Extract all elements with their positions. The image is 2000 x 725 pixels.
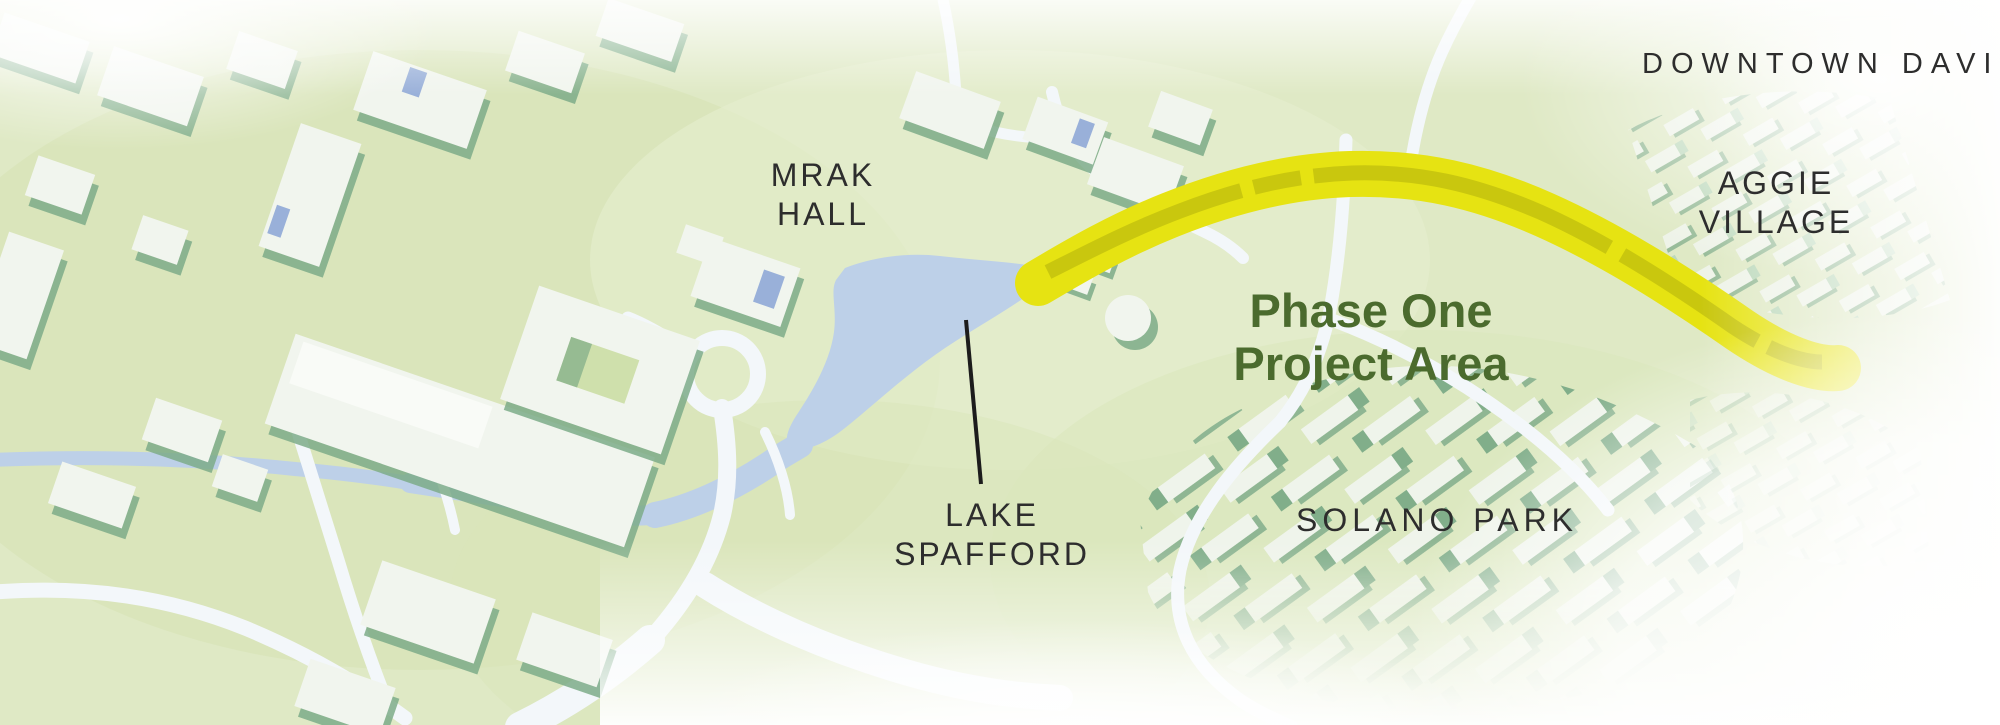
label-mrak-hall-line2: HALL — [771, 195, 875, 234]
map-illustration — [0, 0, 2000, 725]
campus-map: DOWNTOWN DAVIS MRAK HALL Phase One Proje… — [0, 0, 2000, 725]
label-aggie-village-line2: VILLAGE — [1699, 203, 1853, 242]
label-aggie-village: AGGIE VILLAGE — [1699, 164, 1853, 242]
label-mrak-hall: MRAK HALL — [771, 156, 875, 234]
label-solano-park: SOLANO PARK — [1296, 502, 1578, 539]
phase-title-line1: Phase One — [1233, 284, 1508, 337]
label-downtown-davis: DOWNTOWN DAVIS — [1642, 48, 2000, 81]
label-lake-spafford-line1: LAKE — [894, 496, 1090, 535]
label-mrak-hall-line1: MRAK — [771, 156, 875, 195]
label-lake-spafford-line2: SPAFFORD — [894, 535, 1090, 574]
label-aggie-village-line1: AGGIE — [1699, 164, 1853, 203]
label-phase-one-project-area: Phase One Project Area — [1233, 284, 1508, 390]
label-lake-spafford: LAKE SPAFFORD — [894, 496, 1090, 574]
phase-title-line2: Project Area — [1233, 337, 1508, 390]
